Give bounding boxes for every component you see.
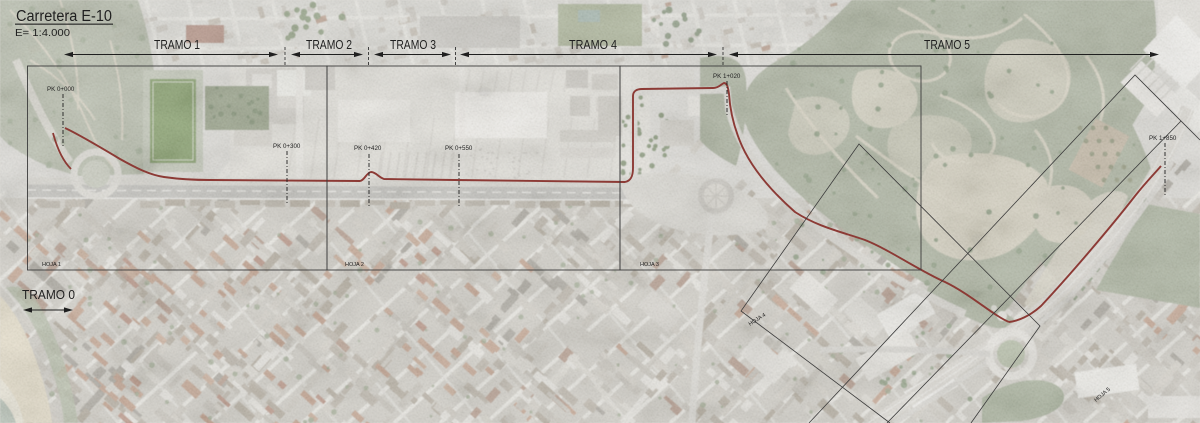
svg-text:PK 0+000: PK 0+000 <box>47 86 75 93</box>
svg-text:TRAMO 1: TRAMO 1 <box>154 38 200 52</box>
svg-text:HOJA 3: HOJA 3 <box>640 262 659 268</box>
svg-text:TRAMO 4: TRAMO 4 <box>569 38 617 52</box>
svg-text:TRAMO 5: TRAMO 5 <box>924 38 970 52</box>
svg-text:PK 0+300: PK 0+300 <box>273 143 301 150</box>
svg-text:Carretera E-10: Carretera E-10 <box>16 8 112 25</box>
svg-text:TRAMO 0: TRAMO 0 <box>22 287 75 302</box>
svg-text:TRAMO 3: TRAMO 3 <box>390 38 436 52</box>
svg-text:HOJA 1: HOJA 1 <box>42 262 61 268</box>
svg-text:HOJA 2: HOJA 2 <box>345 262 364 268</box>
svg-text:PK 1+020: PK 1+020 <box>713 73 741 80</box>
svg-text:PK 1+850: PK 1+850 <box>1149 135 1177 142</box>
svg-text:TRAMO 2: TRAMO 2 <box>306 38 352 52</box>
svg-text:PK 0+420: PK 0+420 <box>354 145 382 152</box>
svg-text:E= 1:4.000: E= 1:4.000 <box>15 27 70 39</box>
svg-text:PK 0+550: PK 0+550 <box>445 145 473 152</box>
